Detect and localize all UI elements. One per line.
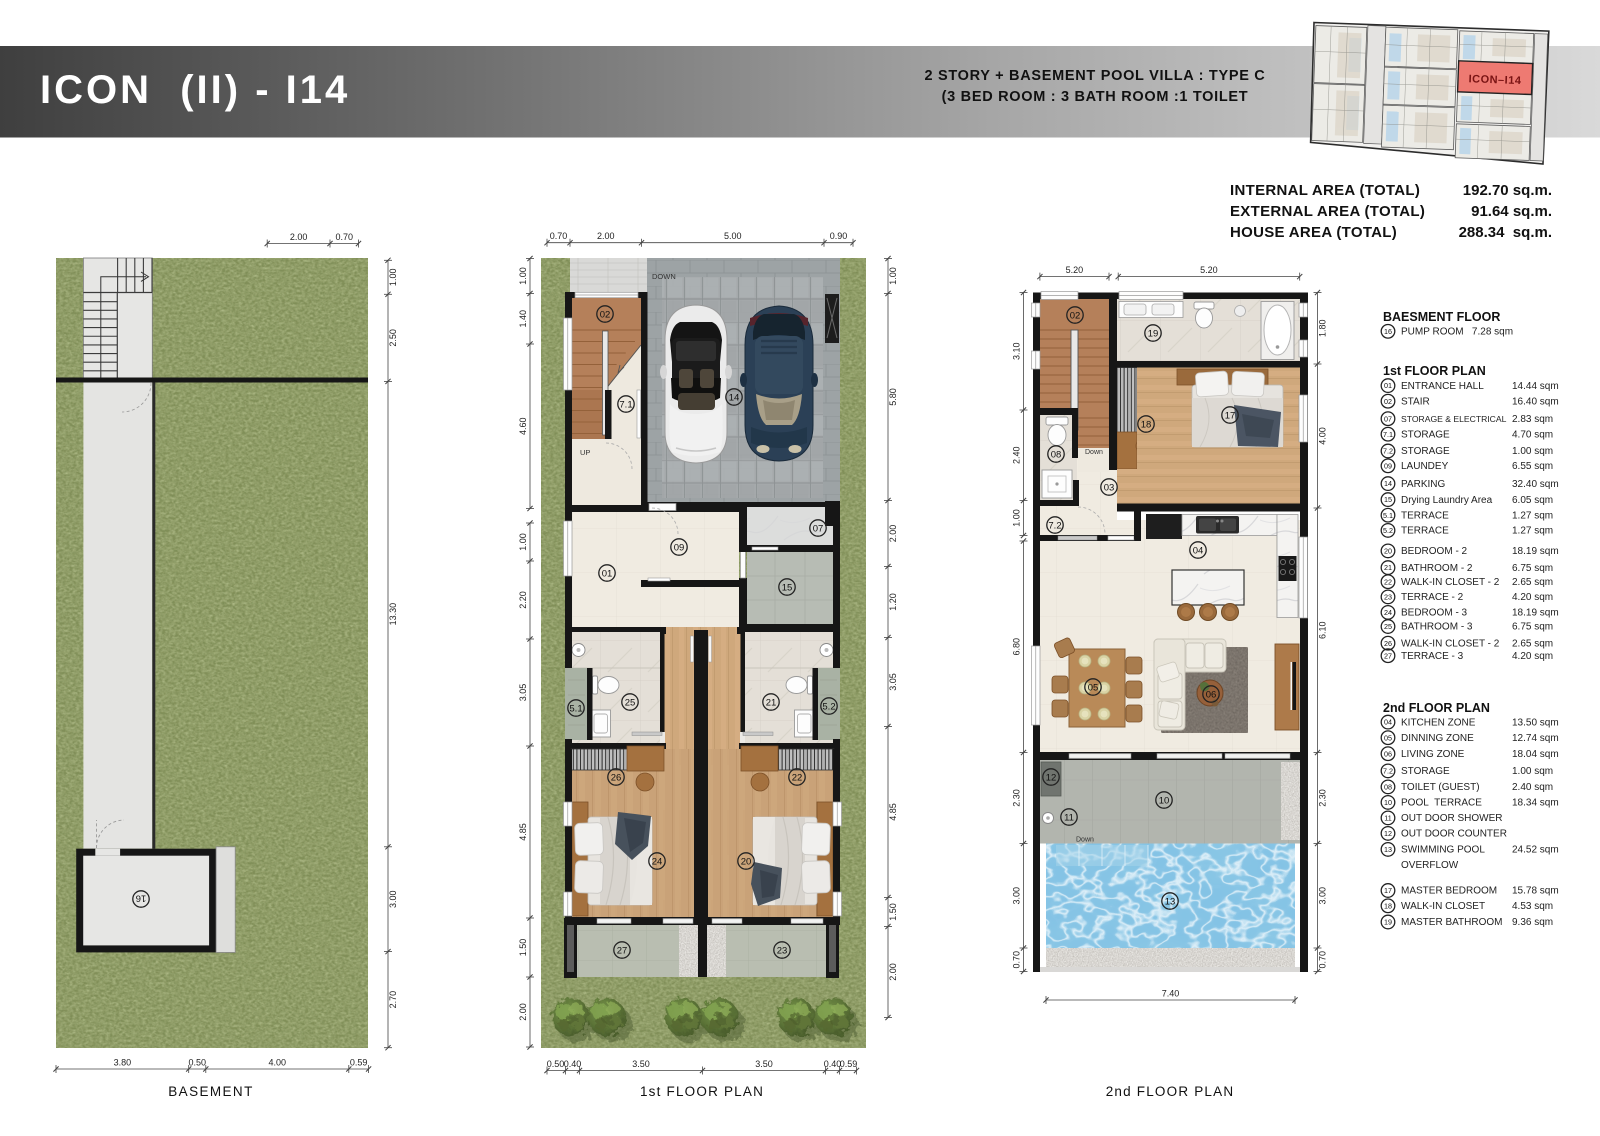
svg-text:TOILET (GUEST): TOILET (GUEST) bbox=[1401, 782, 1480, 793]
svg-text:7.1: 7.1 bbox=[1383, 430, 1393, 439]
svg-text:2.40: 2.40 bbox=[1012, 446, 1022, 464]
svg-text:UP: UP bbox=[580, 448, 590, 457]
svg-text:Down: Down bbox=[1085, 449, 1103, 456]
svg-text:BEDROOM - 2: BEDROOM - 2 bbox=[1401, 546, 1468, 557]
svg-text:1.50: 1.50 bbox=[518, 939, 528, 957]
svg-text:TERRACE: TERRACE bbox=[1401, 510, 1449, 521]
svg-text:EXTERNAL AREA (TOTAL): EXTERNAL AREA (TOTAL) bbox=[1230, 203, 1425, 220]
svg-text:1.00 sqm: 1.00 sqm bbox=[1512, 766, 1553, 777]
svg-text:2.65 sqm: 2.65 sqm bbox=[1512, 577, 1553, 588]
svg-text:14: 14 bbox=[729, 392, 740, 403]
svg-text:13: 13 bbox=[1384, 845, 1392, 854]
svg-text:5.20: 5.20 bbox=[1066, 265, 1084, 275]
svg-text:2.20: 2.20 bbox=[518, 591, 528, 609]
svg-text:09: 09 bbox=[1384, 461, 1392, 470]
svg-text:ENTRANCE HALL: ENTRANCE HALL bbox=[1401, 381, 1484, 392]
svg-text:16: 16 bbox=[1384, 327, 1392, 336]
svg-text:5.2: 5.2 bbox=[1383, 526, 1393, 535]
svg-text:23: 23 bbox=[777, 945, 788, 956]
svg-text:24.52 sqm: 24.52 sqm bbox=[1512, 845, 1559, 856]
svg-text:18.19 sqm: 18.19 sqm bbox=[1512, 546, 1559, 557]
svg-text:3.50: 3.50 bbox=[755, 1059, 773, 1069]
svg-text:0.40: 0.40 bbox=[564, 1059, 582, 1069]
svg-text:Down: Down bbox=[1076, 837, 1094, 844]
svg-text:2.00: 2.00 bbox=[888, 525, 898, 543]
svg-text:15: 15 bbox=[1384, 495, 1392, 504]
svg-text:14.44 sqm: 14.44 sqm bbox=[1512, 381, 1559, 392]
svg-text:BASEMENT: BASEMENT bbox=[168, 1084, 253, 1099]
svg-text:08: 08 bbox=[1051, 449, 1062, 460]
svg-text:0.90: 0.90 bbox=[830, 231, 848, 241]
svg-text:04: 04 bbox=[1193, 545, 1204, 556]
svg-text:19: 19 bbox=[1148, 328, 1159, 339]
svg-text:7.1: 7.1 bbox=[619, 399, 632, 410]
svg-text:03: 03 bbox=[1104, 482, 1115, 493]
svg-text:2.00: 2.00 bbox=[290, 232, 308, 242]
svg-text:2.50: 2.50 bbox=[388, 329, 398, 347]
svg-text:TERRACE - 3: TERRACE - 3 bbox=[1401, 651, 1464, 662]
svg-text:STORAGE & ELECTRICAL: STORAGE & ELECTRICAL bbox=[1401, 414, 1507, 424]
svg-text:13.50 sqm: 13.50 sqm bbox=[1512, 717, 1559, 728]
svg-text:4.60: 4.60 bbox=[518, 417, 528, 435]
svg-text:3.80: 3.80 bbox=[114, 1058, 132, 1068]
svg-text:9.36 sqm: 9.36 sqm bbox=[1512, 917, 1553, 928]
svg-text:09: 09 bbox=[674, 542, 685, 553]
svg-text:4.00: 4.00 bbox=[269, 1058, 287, 1068]
svg-text:26: 26 bbox=[1384, 639, 1392, 648]
svg-text:1.00: 1.00 bbox=[518, 533, 528, 551]
svg-text:0.50: 0.50 bbox=[547, 1059, 565, 1069]
svg-text:0.40: 0.40 bbox=[824, 1059, 842, 1069]
svg-text:20: 20 bbox=[741, 856, 752, 867]
svg-text:3.05: 3.05 bbox=[888, 673, 898, 691]
svg-text:LAUNDEY: LAUNDEY bbox=[1401, 461, 1449, 472]
svg-text:4.85: 4.85 bbox=[518, 823, 528, 841]
svg-text:10: 10 bbox=[1384, 798, 1392, 807]
svg-text:04: 04 bbox=[1384, 718, 1392, 727]
svg-text:4.70 sqm: 4.70 sqm bbox=[1512, 429, 1553, 440]
svg-text:21: 21 bbox=[766, 697, 777, 708]
svg-text:HOUSE AREA (TOTAL): HOUSE AREA (TOTAL) bbox=[1230, 224, 1397, 241]
svg-text:7.2: 7.2 bbox=[1048, 520, 1061, 531]
svg-text:12: 12 bbox=[1384, 829, 1392, 838]
svg-text:2.30: 2.30 bbox=[1318, 789, 1328, 807]
svg-text:5.1: 5.1 bbox=[1383, 511, 1393, 520]
svg-text:POOL TERRACE: POOL TERRACE bbox=[1401, 798, 1482, 809]
svg-text:Drying Laundry Area: Drying Laundry Area bbox=[1401, 495, 1493, 506]
svg-text:24: 24 bbox=[1384, 608, 1392, 617]
svg-text:0.59: 0.59 bbox=[350, 1058, 368, 1068]
svg-text:2.00: 2.00 bbox=[888, 963, 898, 981]
svg-text:OUT DOOR SHOWER: OUT DOOR SHOWER bbox=[1401, 813, 1502, 824]
svg-text:18.04 sqm: 18.04 sqm bbox=[1512, 749, 1559, 760]
svg-text:WALK-IN CLOSET - 2: WALK-IN CLOSET - 2 bbox=[1401, 577, 1500, 588]
svg-text:27: 27 bbox=[1384, 651, 1392, 660]
svg-text:26: 26 bbox=[611, 772, 622, 783]
svg-text:288.34 sq.m.: 288.34 sq.m. bbox=[1459, 224, 1552, 241]
svg-text:DOWN: DOWN bbox=[652, 272, 676, 281]
svg-text:24: 24 bbox=[652, 856, 663, 867]
svg-text:4.20 sqm: 4.20 sqm bbox=[1512, 592, 1553, 603]
svg-text:18: 18 bbox=[1384, 901, 1392, 910]
svg-text:11: 11 bbox=[1064, 812, 1074, 823]
svg-text:6.75 sqm: 6.75 sqm bbox=[1512, 622, 1553, 633]
svg-text:7.2: 7.2 bbox=[1383, 766, 1393, 775]
svg-text:2.40 sqm: 2.40 sqm bbox=[1512, 782, 1553, 793]
svg-text:STORAGE: STORAGE bbox=[1401, 446, 1450, 457]
svg-text:SWIMMING POOL: SWIMMING POOL bbox=[1401, 845, 1485, 856]
svg-text:0.70: 0.70 bbox=[335, 232, 353, 242]
svg-text:15: 15 bbox=[782, 582, 793, 593]
svg-text:05: 05 bbox=[1384, 733, 1392, 742]
svg-text:17: 17 bbox=[1225, 410, 1236, 421]
svg-text:1.00: 1.00 bbox=[388, 269, 398, 287]
svg-text:BAESMENT FLOOR: BAESMENT FLOOR bbox=[1383, 310, 1500, 324]
svg-text:01: 01 bbox=[602, 568, 613, 579]
svg-text:5.20: 5.20 bbox=[1200, 265, 1218, 275]
svg-text:27: 27 bbox=[617, 945, 628, 956]
svg-text:12.74 sqm: 12.74 sqm bbox=[1512, 733, 1559, 744]
svg-text:18.34 sqm: 18.34 sqm bbox=[1512, 798, 1559, 809]
svg-text:11: 11 bbox=[1384, 813, 1391, 822]
svg-text:6.80: 6.80 bbox=[1012, 638, 1022, 656]
svg-text:INTERNAL AREA (TOTAL): INTERNAL AREA (TOTAL) bbox=[1230, 182, 1420, 199]
svg-text:1.00: 1.00 bbox=[1012, 509, 1022, 527]
svg-text:07: 07 bbox=[1384, 414, 1392, 423]
svg-text:18.19 sqm: 18.19 sqm bbox=[1512, 608, 1559, 619]
svg-text:7.2: 7.2 bbox=[1383, 447, 1393, 456]
svg-text:STORAGE: STORAGE bbox=[1401, 766, 1450, 777]
svg-text:BATHROOM - 3: BATHROOM - 3 bbox=[1401, 622, 1473, 633]
svg-text:2.83 sqm: 2.83 sqm bbox=[1512, 414, 1553, 425]
svg-text:OVERFLOW: OVERFLOW bbox=[1401, 860, 1459, 871]
svg-text:1.00: 1.00 bbox=[518, 267, 528, 285]
svg-text:LIVING ZONE: LIVING ZONE bbox=[1401, 749, 1465, 760]
svg-text:5.00: 5.00 bbox=[724, 231, 742, 241]
svg-text:3.10: 3.10 bbox=[1012, 342, 1022, 360]
svg-text:ICON (II) - I14: ICON (II) - I14 bbox=[40, 68, 350, 112]
svg-text:0.59: 0.59 bbox=[840, 1059, 858, 1069]
svg-text:1.27 sqm: 1.27 sqm bbox=[1512, 526, 1553, 537]
svg-text:0.70: 0.70 bbox=[550, 231, 568, 241]
svg-text:3.50: 3.50 bbox=[632, 1059, 650, 1069]
svg-text:MASTER BEDROOM: MASTER BEDROOM bbox=[1401, 886, 1497, 897]
svg-text:STAIR: STAIR bbox=[1401, 396, 1430, 407]
svg-text:3.00: 3.00 bbox=[1012, 887, 1022, 905]
svg-text:2.65 sqm: 2.65 sqm bbox=[1512, 638, 1553, 649]
svg-text:BATHROOM - 2: BATHROOM - 2 bbox=[1401, 563, 1473, 574]
svg-text:21: 21 bbox=[1384, 563, 1392, 572]
svg-text:DINNING ZONE: DINNING ZONE bbox=[1401, 733, 1474, 744]
svg-text:22: 22 bbox=[1384, 577, 1392, 586]
svg-text:2nd FLOOR PLAN: 2nd FLOOR PLAN bbox=[1106, 1084, 1235, 1099]
svg-text:13: 13 bbox=[1165, 896, 1176, 907]
svg-text:MASTER BATHROOM: MASTER BATHROOM bbox=[1401, 917, 1502, 928]
svg-text:20: 20 bbox=[1384, 546, 1392, 555]
svg-text:17: 17 bbox=[1384, 886, 1392, 895]
svg-text:5.2: 5.2 bbox=[822, 701, 835, 712]
svg-text:06: 06 bbox=[1206, 689, 1217, 700]
svg-text:14: 14 bbox=[1384, 479, 1392, 488]
svg-text:4.20 sqm: 4.20 sqm bbox=[1512, 651, 1553, 662]
svg-text:KITCHEN ZONE: KITCHEN ZONE bbox=[1401, 717, 1476, 728]
svg-text:WALK-IN CLOSET: WALK-IN CLOSET bbox=[1401, 901, 1485, 912]
svg-text:18: 18 bbox=[1141, 419, 1152, 430]
svg-text:1.40: 1.40 bbox=[518, 310, 528, 328]
svg-text:TERRACE: TERRACE bbox=[1401, 526, 1449, 537]
svg-text:19: 19 bbox=[1384, 918, 1392, 927]
svg-text:15.78 sqm: 15.78 sqm bbox=[1512, 886, 1559, 897]
svg-text:4.85: 4.85 bbox=[888, 803, 898, 821]
svg-text:6.55 sqm: 6.55 sqm bbox=[1512, 461, 1553, 472]
svg-text:2.00: 2.00 bbox=[597, 231, 615, 241]
svg-text:2.70: 2.70 bbox=[388, 991, 398, 1009]
svg-text:01: 01 bbox=[1384, 381, 1392, 390]
svg-text:23: 23 bbox=[1384, 592, 1392, 601]
svg-text:2nd FLOOR PLAN: 2nd FLOOR PLAN bbox=[1383, 701, 1490, 715]
svg-text:ICON–I14: ICON–I14 bbox=[1468, 73, 1522, 87]
svg-text:06: 06 bbox=[1384, 749, 1392, 758]
svg-text:5.1: 5.1 bbox=[569, 703, 582, 714]
svg-text:4.53 sqm: 4.53 sqm bbox=[1512, 901, 1553, 912]
svg-text:1st FLOOR PLAN: 1st FLOOR PLAN bbox=[640, 1084, 764, 1099]
svg-text:1.50: 1.50 bbox=[888, 903, 898, 921]
svg-text:7.40: 7.40 bbox=[1162, 989, 1180, 999]
svg-text:08: 08 bbox=[1384, 782, 1392, 791]
svg-text:6.10: 6.10 bbox=[1318, 621, 1328, 639]
svg-text:WALK-IN CLOSET - 2: WALK-IN CLOSET - 2 bbox=[1401, 638, 1500, 649]
svg-text:6.05 sqm: 6.05 sqm bbox=[1512, 495, 1553, 506]
svg-text:25: 25 bbox=[1384, 622, 1392, 631]
svg-text:BEDROOM - 3: BEDROOM - 3 bbox=[1401, 608, 1468, 619]
svg-text:02: 02 bbox=[600, 309, 611, 320]
svg-text:192.70 sq.m.: 192.70 sq.m. bbox=[1463, 182, 1552, 199]
svg-text:PARKING: PARKING bbox=[1401, 479, 1445, 490]
svg-text:1.00 sqm: 1.00 sqm bbox=[1512, 446, 1553, 457]
svg-text:PUMP ROOM 7.28 sqm: PUMP ROOM 7.28 sqm bbox=[1401, 327, 1513, 338]
svg-text:3.00: 3.00 bbox=[388, 890, 398, 908]
svg-text:02: 02 bbox=[1384, 397, 1392, 406]
svg-text:10: 10 bbox=[1159, 795, 1170, 806]
svg-text:02: 02 bbox=[1070, 310, 1081, 321]
svg-text:2 STORY + BASEMENT POOL VILLA: 2 STORY + BASEMENT POOL VILLA : TYPE C bbox=[925, 68, 1266, 84]
svg-text:12: 12 bbox=[1046, 772, 1057, 783]
svg-text:1st FLOOR PLAN: 1st FLOOR PLAN bbox=[1383, 364, 1486, 378]
svg-text:22: 22 bbox=[792, 772, 803, 783]
svg-text:1.80: 1.80 bbox=[1318, 319, 1328, 337]
svg-text:3.05: 3.05 bbox=[518, 684, 528, 702]
svg-text:13.30: 13.30 bbox=[388, 603, 398, 626]
svg-text:07: 07 bbox=[813, 523, 824, 534]
svg-text:1.00: 1.00 bbox=[888, 267, 898, 285]
svg-text:2.30: 2.30 bbox=[1012, 789, 1022, 807]
svg-text:STORAGE: STORAGE bbox=[1401, 429, 1450, 440]
svg-text:3.00: 3.00 bbox=[1318, 887, 1328, 905]
svg-text:2.00: 2.00 bbox=[518, 1003, 528, 1021]
svg-text:1.27 sqm: 1.27 sqm bbox=[1512, 510, 1553, 521]
svg-text:05: 05 bbox=[1088, 682, 1099, 693]
svg-text:0.70: 0.70 bbox=[1012, 951, 1022, 969]
svg-text:5.80: 5.80 bbox=[888, 388, 898, 406]
svg-text:1.20: 1.20 bbox=[888, 593, 898, 611]
svg-text:0.70: 0.70 bbox=[1318, 951, 1328, 969]
svg-text:25: 25 bbox=[625, 697, 636, 708]
svg-text:91.64 sq.m.: 91.64 sq.m. bbox=[1471, 203, 1552, 220]
svg-text:6.75 sqm: 6.75 sqm bbox=[1512, 563, 1553, 574]
svg-text:OUT DOOR COUNTER: OUT DOOR COUNTER bbox=[1401, 829, 1507, 840]
svg-text:16: 16 bbox=[136, 893, 147, 904]
svg-text:16.40 sqm: 16.40 sqm bbox=[1512, 396, 1559, 407]
svg-text:(3 BED ROOM : 3 BATH ROOM :1 T: (3 BED ROOM : 3 BATH ROOM :1 TOILET bbox=[942, 89, 1249, 105]
svg-text:0.50: 0.50 bbox=[188, 1058, 206, 1068]
svg-text:4.00: 4.00 bbox=[1318, 427, 1328, 445]
svg-text:TERRACE - 2: TERRACE - 2 bbox=[1401, 592, 1464, 603]
svg-text:32.40 sqm: 32.40 sqm bbox=[1512, 479, 1559, 490]
